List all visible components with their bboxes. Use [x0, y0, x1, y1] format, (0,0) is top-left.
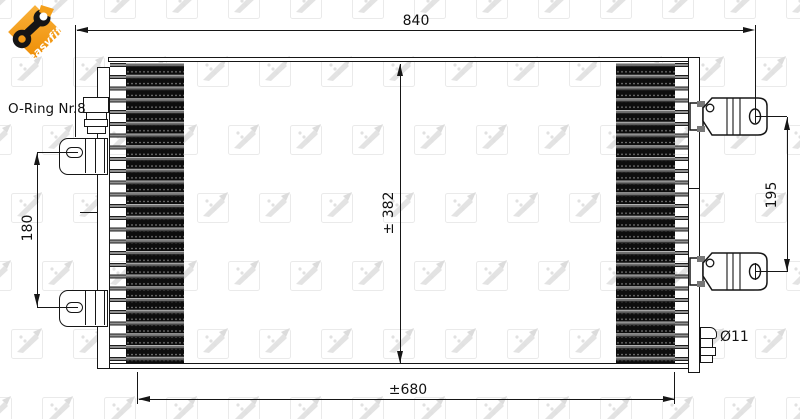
outlet-fitting-segment — [700, 355, 713, 363]
dim-840-arrow-right — [743, 27, 755, 33]
right-fin-block — [616, 63, 675, 363]
condenser-technical-drawing: easyfit — [0, 0, 800, 419]
dim-840-ext-right — [755, 25, 756, 123]
dim-195-label: 195 — [765, 170, 779, 220]
left-header-stub-line — [80, 212, 98, 213]
dim-680-label: ±680 — [378, 383, 438, 397]
right-header-baffle-line — [688, 188, 700, 189]
dim-382-arrow-down — [397, 351, 403, 363]
bracket-line — [85, 291, 86, 325]
dim-195-ref-top — [755, 116, 787, 117]
easyfit-logo: easyfit — [4, 1, 66, 63]
oring-fitting-segment — [83, 97, 109, 113]
dim-840-arrow-left — [76, 27, 88, 33]
dim-195-arrow-up — [784, 118, 790, 130]
dim-382-arrow-up — [397, 64, 403, 76]
dim-382-label: ± 382 — [382, 178, 396, 248]
bracket-line — [85, 139, 86, 173]
oring-label: O-Ring Nr.8 — [8, 102, 86, 116]
upper-left-bracket — [59, 138, 108, 175]
dim-840-ext-left — [75, 25, 76, 137]
core-bottom-plate — [102, 363, 696, 369]
lower-right-bracket — [688, 250, 788, 296]
right-tube-ends — [675, 63, 688, 363]
dim-180-arrow-down — [34, 294, 40, 306]
dim-840-line — [77, 30, 744, 31]
left-tube-ends — [110, 63, 126, 363]
dim-680-ext-left — [137, 372, 138, 404]
dim-195-ref-bottom — [755, 271, 787, 272]
oring-fitting-segment — [87, 126, 106, 134]
dim-195-arrow-down — [784, 259, 790, 271]
dim-180-label: 180 — [21, 203, 35, 253]
bracket-line — [104, 291, 105, 325]
dim-180-ref-top — [37, 152, 78, 153]
dim-840-label: 840 — [386, 14, 446, 28]
dim-180-arrow-up — [34, 153, 40, 165]
bracket-line — [95, 291, 96, 325]
dim-680-line — [139, 399, 675, 400]
bracket-line — [104, 139, 105, 173]
core-top-plate — [108, 57, 696, 62]
diameter-label: Ø11 — [720, 330, 749, 344]
bracket-line — [95, 139, 96, 173]
upper-right-bracket — [688, 95, 788, 141]
dim-195-line — [787, 117, 788, 272]
dim-180-line — [37, 152, 38, 307]
dim-180-ref-bottom — [37, 307, 78, 308]
left-fin-block — [126, 63, 184, 363]
dim-680-ext-right — [674, 372, 675, 404]
dim-680-arrow-left — [138, 396, 150, 402]
dim-382-line — [400, 64, 401, 363]
